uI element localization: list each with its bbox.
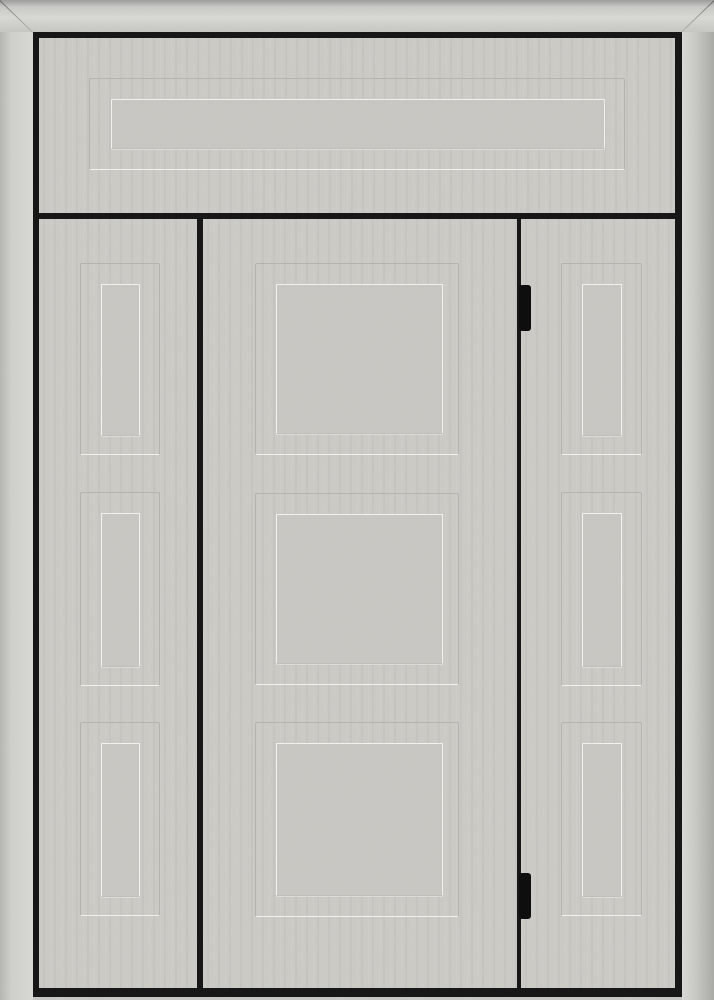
panel-field: [101, 743, 140, 897]
sidelight-right-panel-middle: [561, 492, 642, 686]
door-slab: [203, 219, 517, 988]
panel-field: [276, 284, 443, 434]
panel-field: [582, 743, 622, 897]
panel-field: [101, 284, 140, 436]
door-panel-top: [255, 263, 459, 455]
panel-field: [276, 514, 443, 664]
panel-field: [582, 513, 622, 667]
door-panel-middle: [255, 493, 459, 685]
sidelight-right-panel-bottom: [561, 722, 642, 916]
panel-field: [582, 284, 622, 436]
sidelight-left-panel-top: [80, 263, 160, 455]
door-unit-photo: [0, 0, 714, 1000]
sidelight-right-panel-top: [561, 263, 642, 455]
transom-panel: [89, 78, 625, 170]
transom-panel-field: [111, 99, 605, 149]
sidelight-right: [521, 219, 675, 988]
metal-frame-left: [0, 0, 33, 1000]
panel-field: [101, 513, 140, 667]
sidelight-left-panel-bottom: [80, 722, 160, 916]
transom: [39, 38, 675, 213]
sidelight-left: [39, 219, 197, 988]
sidelight-left-panel-middle: [80, 492, 160, 686]
metal-frame-top: [0, 0, 714, 32]
panel-field: [276, 743, 443, 896]
door-panel-bottom: [255, 722, 459, 917]
metal-frame-right: [682, 0, 714, 1000]
hinge-top: [519, 285, 531, 331]
hinge-bottom: [519, 873, 531, 919]
